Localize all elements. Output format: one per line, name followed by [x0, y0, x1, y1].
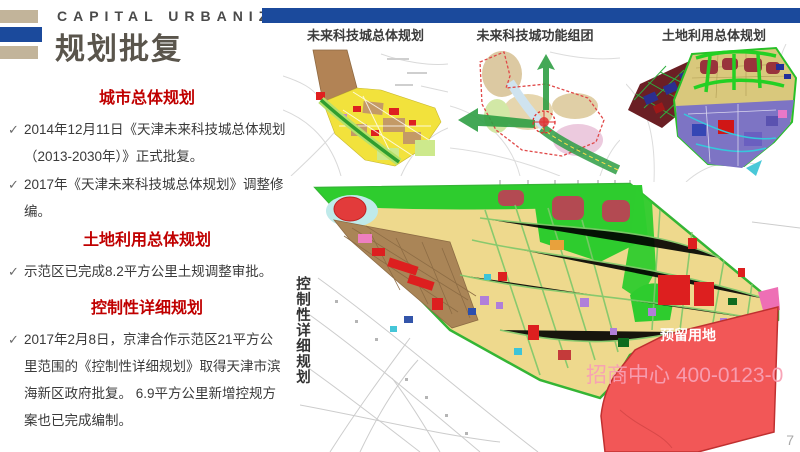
- bullet-text: 2017年《天津未来科技城总体规划》调整修编。: [24, 171, 286, 225]
- section-heading: 控制性详细规划: [8, 294, 286, 318]
- check-icon: ✓: [8, 258, 24, 285]
- map-function-groups-thumbnail: [450, 48, 620, 176]
- header-tan-bar-top: [0, 10, 38, 23]
- bullet-text: 2014年12月11日《天津未来科技城总体规划（2013-2030年）》正式批复…: [24, 116, 286, 170]
- check-icon: ✓: [8, 116, 24, 170]
- section-regulatory-plan: 控制性详细规划 ✓ 2017年2月8日，京津合作示范区21平方公里范围的《控制性…: [8, 294, 286, 435]
- large-map-side-label: 控制性详细规划: [292, 276, 313, 385]
- header-rule-bar: [262, 8, 800, 23]
- check-icon: ✓: [8, 326, 24, 434]
- section-city-master-plan: 城市总体规划 ✓ 2014年12月11日《天津未来科技城总体规划（2013-20…: [8, 84, 286, 226]
- check-icon: ✓: [8, 171, 24, 225]
- map-regulatory-plan-large: 预留用地 招商中心 400-0123-0: [300, 180, 800, 452]
- map-title-function-groups: 未来科技城功能组团: [450, 25, 620, 44]
- bullet-item: ✓ 示范区已完成8.2平方公里土规调整审批。: [8, 258, 286, 285]
- page-title: 规划批复: [55, 24, 183, 68]
- page-number: 7: [786, 432, 794, 448]
- section-land-use-plan: 土地利用总体规划 ✓ 示范区已完成8.2平方公里土规调整审批。: [8, 226, 286, 286]
- map-title-master-plan: 未来科技城总体规划: [283, 25, 448, 44]
- bullet-item: ✓ 2017年《天津未来科技城总体规划》调整修编。: [8, 171, 286, 225]
- bullet-text: 示范区已完成8.2平方公里土规调整审批。: [24, 258, 286, 285]
- watermark-text: 招商中心 400-0123-0: [586, 364, 783, 387]
- header-tan-bar-bottom: [0, 46, 38, 59]
- bullet-text: 2017年2月8日，京津合作示范区21平方公里范围的《控制性详细规划》取得天津市…: [24, 326, 286, 434]
- bullet-item: ✓ 2017年2月8日，京津合作示范区21平方公里范围的《控制性详细规划》取得天…: [8, 326, 286, 434]
- section-heading: 城市总体规划: [8, 84, 286, 108]
- map-title-land-use: 土地利用总体规划: [628, 25, 800, 44]
- header-blue-bar: [0, 27, 42, 42]
- bullet-item: ✓ 2014年12月11日《天津未来科技城总体规划（2013-2030年）》正式…: [8, 116, 286, 170]
- map-land-use-thumbnail: [626, 44, 800, 182]
- reserved-land-label: 预留用地: [660, 327, 716, 343]
- map-master-plan-thumbnail: [283, 48, 448, 176]
- section-heading: 土地利用总体规划: [8, 226, 286, 250]
